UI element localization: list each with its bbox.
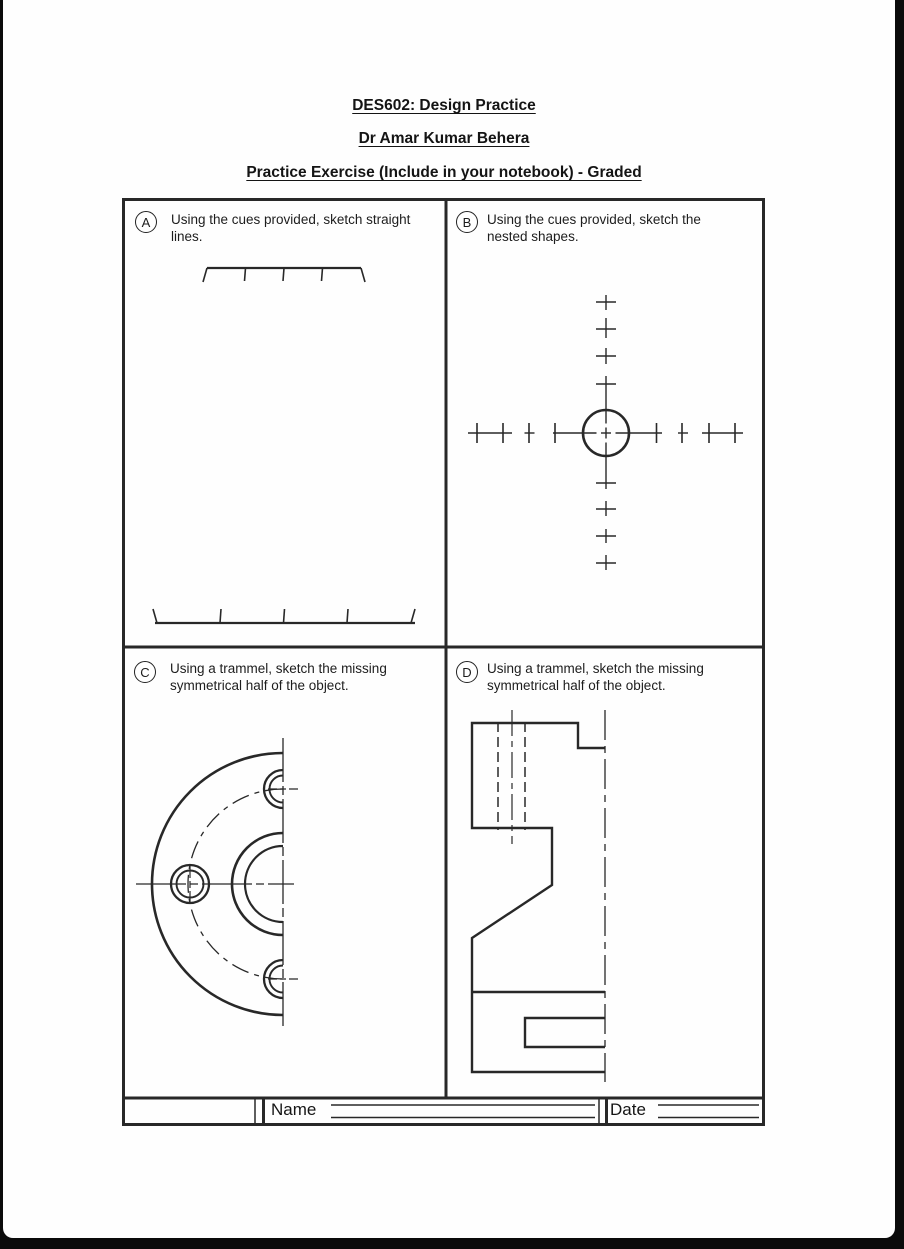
panel-c-letter: C bbox=[140, 665, 149, 680]
panel-b-badge: B bbox=[456, 211, 478, 233]
panel-c-caption-line1: Using a trammel, sketch the missing bbox=[170, 661, 387, 678]
panel-c-caption-line2: symmetrical half of the object. bbox=[170, 678, 387, 695]
author-title: Dr Amar Kumar Behera bbox=[0, 130, 888, 148]
flange-half-drawing bbox=[136, 738, 298, 1028]
panel-d-badge: D bbox=[456, 661, 478, 683]
exercise-title: Practice Exercise (Include in your noteb… bbox=[0, 164, 888, 182]
panel-d-caption-line2: symmetrical half of the object. bbox=[487, 678, 704, 695]
date-field-label: Date bbox=[610, 1100, 646, 1120]
nested-shapes-crosshair-drawing bbox=[468, 295, 743, 570]
bracket-half-drawing bbox=[472, 710, 605, 1082]
name-date-ruled-lines bbox=[331, 1105, 759, 1118]
panel-a-caption: Using the cues provided, sketch straight… bbox=[171, 212, 410, 245]
panel-a-badge: A bbox=[135, 211, 157, 233]
panel-d-caption-line1: Using a trammel, sketch the missing bbox=[487, 661, 704, 678]
panel-a-letter: A bbox=[142, 215, 151, 230]
panel-c-caption: Using a trammel, sketch the missing symm… bbox=[170, 661, 387, 694]
document-page: DES602: Design Practice Dr Amar Kumar Be… bbox=[0, 0, 904, 1249]
panel-b-caption: Using the cues provided, sketch the nest… bbox=[487, 212, 701, 245]
course-title: DES602: Design Practice bbox=[0, 97, 888, 115]
panel-d-letter: D bbox=[462, 665, 471, 680]
name-field-label: Name bbox=[271, 1100, 316, 1120]
panel-b-caption-line2: nested shapes. bbox=[487, 229, 701, 246]
panel-d-caption: Using a trammel, sketch the missing symm… bbox=[487, 661, 704, 694]
straight-line-cues-drawing bbox=[153, 268, 415, 623]
panel-b-letter: B bbox=[463, 215, 472, 230]
panel-b-caption-line1: Using the cues provided, sketch the bbox=[487, 212, 701, 229]
panel-a-caption-line2: lines. bbox=[171, 229, 410, 246]
panel-a-caption-line1: Using the cues provided, sketch straight bbox=[171, 212, 410, 229]
panel-c-badge: C bbox=[134, 661, 156, 683]
